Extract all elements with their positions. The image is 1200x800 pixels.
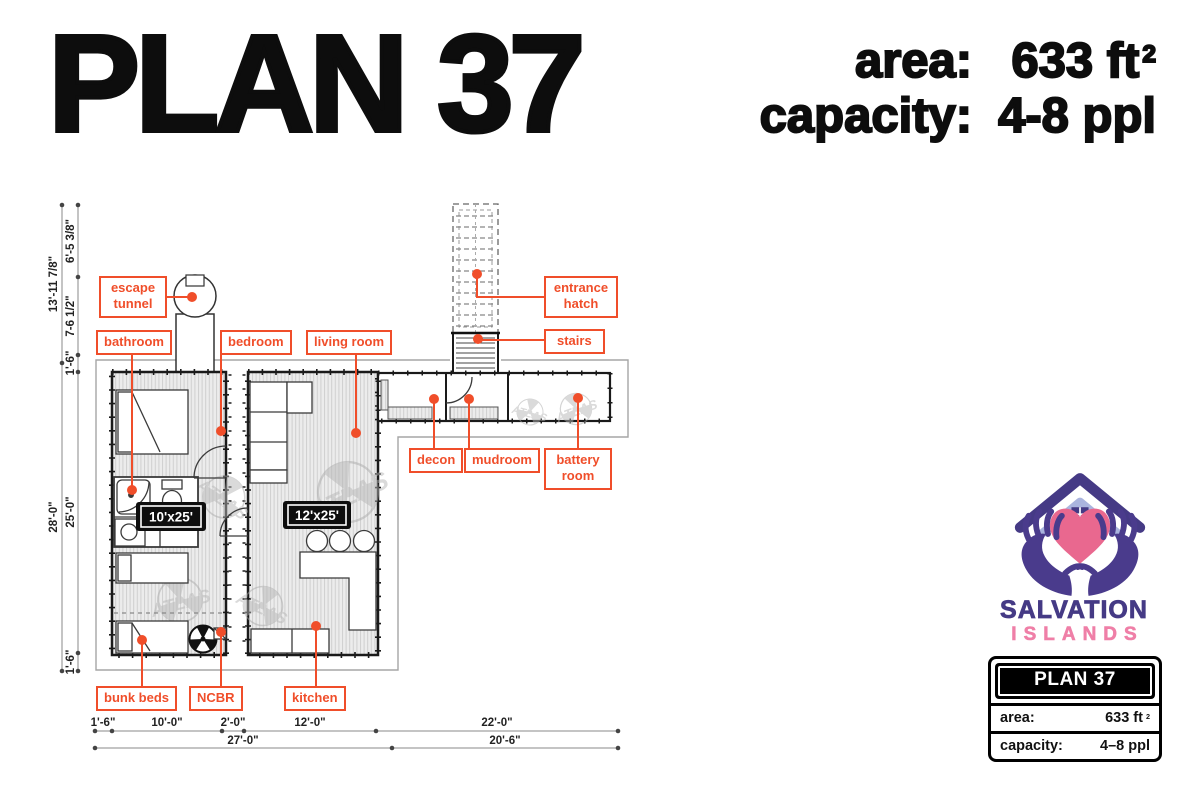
capacity-label: capacity:	[760, 89, 972, 144]
plan-37-poster: { "header": { "title": "PLAN 37", "stats…	[0, 0, 1200, 800]
svg-text:1'-6": 1'-6"	[65, 650, 77, 675]
area-label: area:	[760, 34, 972, 89]
size-badge-right-module: 12'x25'	[283, 501, 351, 529]
svg-text:7-6 1/2": 7-6 1/2"	[65, 295, 77, 336]
room-label-living-room: living room	[306, 330, 392, 355]
svg-text:1'-6": 1'-6"	[91, 717, 116, 729]
svg-text:6'-5 3/8": 6'-5 3/8"	[65, 219, 77, 263]
size-badge-left-module: 10'x25'	[136, 502, 206, 531]
svg-text:10'-0": 10'-0"	[151, 717, 182, 729]
room-label-stairs: stairs	[544, 329, 605, 354]
svg-text:20'-6": 20'-6"	[489, 735, 520, 747]
room-label-ncbr: NCBR	[189, 686, 243, 711]
plan-info-card: PLAN 37 area: 633 ft2 capacity: 4–8 ppl	[988, 656, 1162, 762]
card-area-label: area:	[1000, 710, 1035, 726]
room-label-bedroom: bedroom	[220, 330, 292, 355]
card-capacity-value: 4–8 ppl	[1100, 738, 1150, 754]
svg-text:1'-6": 1'-6"	[65, 351, 77, 376]
svg-text:25'-0": 25'-0"	[65, 496, 77, 527]
plan-card-area-row: area: 633 ft2	[991, 703, 1159, 731]
room-label-entrance-hatch: entrance hatch	[544, 276, 618, 318]
svg-text:27'-0": 27'-0"	[227, 735, 258, 747]
svg-text:12'x25': 12'x25'	[295, 508, 339, 523]
plan-card-title: PLAN 37	[998, 666, 1152, 696]
room-label-mudroom: mudroom	[464, 448, 540, 473]
area-value: 633 ft2	[998, 34, 1156, 89]
capacity-value: 4-8 ppl	[998, 89, 1156, 144]
card-capacity-label: capacity:	[1000, 738, 1063, 754]
escape-tunnel-shaft	[174, 275, 216, 372]
svg-text:13'-11 7/8": 13'-11 7/8"	[48, 256, 60, 312]
header-stats: area: 633 ft2 capacity: 4-8 ppl	[760, 34, 1156, 145]
svg-text:2'-0": 2'-0"	[221, 717, 246, 729]
plan-card-capacity-row: capacity: 4–8 ppl	[991, 731, 1159, 759]
page-title: PLAN 37	[48, 14, 581, 155]
brand-name: SALVATION	[985, 597, 1163, 623]
room-label-bathroom: bathroom	[96, 330, 172, 355]
room-label-kitchen: kitchen	[284, 686, 346, 711]
plan-card-header: PLAN 37	[995, 663, 1155, 699]
brand-subname: ISLANDS	[985, 624, 1163, 646]
svg-text:22'-0": 22'-0"	[481, 717, 512, 729]
svg-text:10'x25': 10'x25'	[149, 510, 193, 525]
room-label-bunk-beds: bunk beds	[96, 686, 177, 711]
area-sup: 2	[1142, 41, 1156, 68]
room-label-decon: decon	[409, 448, 463, 473]
room-label-escape-tunnel: escape tunnel	[99, 276, 167, 318]
svg-text:28'-0": 28'-0"	[48, 501, 60, 532]
salvation-islands-logo	[1002, 472, 1158, 598]
svg-text:12'-0": 12'-0"	[294, 717, 325, 729]
card-area-value: 633 ft2	[1105, 710, 1150, 726]
room-label-battery-room: battery room	[544, 448, 612, 490]
